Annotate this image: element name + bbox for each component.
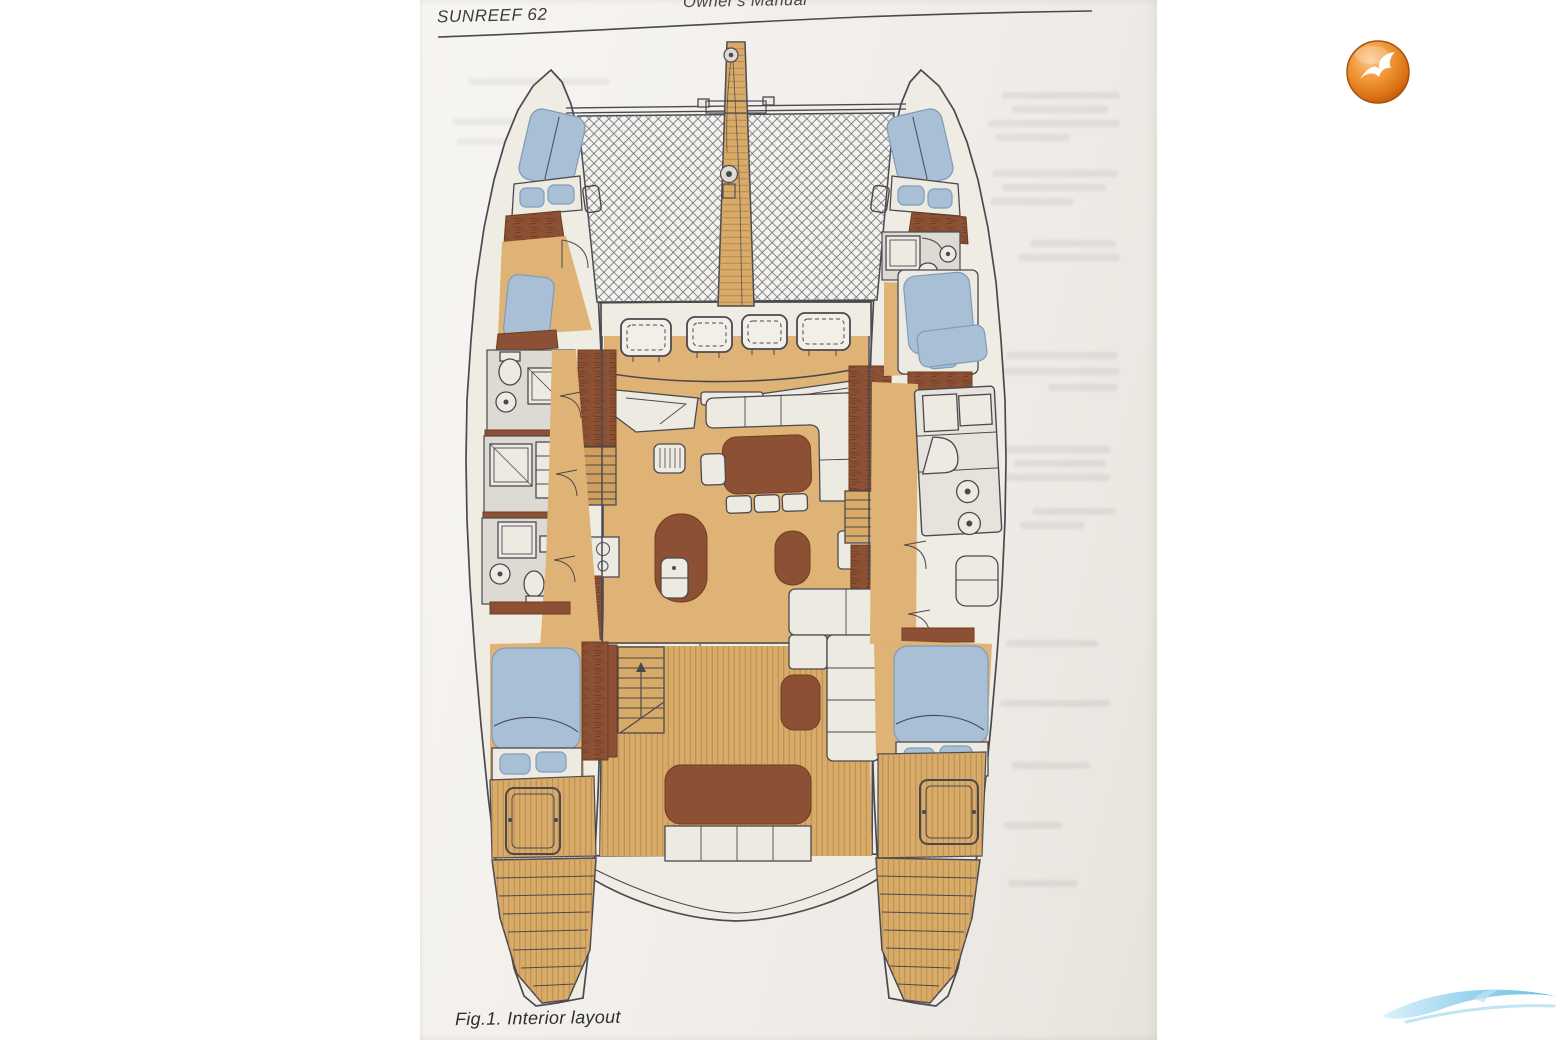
deck-hatch: [742, 315, 787, 355]
cockpit-bench: [789, 635, 827, 669]
deck-hatch: [687, 317, 732, 358]
hull-corridor: [870, 382, 918, 644]
broker-logo: [1344, 38, 1412, 106]
settee: [956, 556, 998, 606]
hull-window: [916, 324, 988, 368]
starboard-galley-counter: [914, 386, 1002, 537]
toilet-icon: [499, 359, 521, 385]
cockpit-table: [665, 765, 811, 824]
cockpit-seat-cushions: [665, 826, 811, 861]
cockpit-bench: [789, 589, 875, 635]
dining-stool: [726, 496, 752, 514]
pillow: [898, 186, 924, 205]
aft-platform: [560, 854, 912, 921]
deck-hatch: [621, 319, 671, 362]
port-side-deck: [490, 776, 596, 858]
watermark: [1376, 974, 1560, 1034]
deck-hatch: [797, 313, 850, 356]
counter-module: [959, 394, 993, 426]
pillow: [548, 185, 574, 204]
dining-stool: [754, 495, 780, 513]
manual-model-title: SUNREEF 62: [437, 5, 548, 28]
cockpit-side-table: [781, 675, 820, 730]
appliance: [923, 394, 959, 432]
companionway-steps: [618, 647, 664, 733]
scanned-manual-photo: SUNREEF 62 Owner's Manual Fig.1. Interio…: [0, 0, 1560, 1040]
ottoman: [775, 531, 810, 585]
pillow: [520, 188, 544, 207]
pillow: [500, 754, 530, 774]
floor-plan: [0, 0, 1560, 1040]
starboard-side-deck: [878, 752, 986, 858]
dining-stool: [782, 494, 808, 512]
divider: [902, 628, 974, 642]
shower-icon: [886, 236, 920, 270]
cockpit-bench: [827, 635, 879, 761]
orange-seagull-badge-icon: [1347, 41, 1409, 103]
divider: [490, 602, 570, 614]
saloon-dining-table: [722, 434, 812, 494]
double-berth: [492, 648, 580, 750]
shower-icon: [498, 522, 536, 558]
toilet-icon: [524, 571, 544, 597]
divider: [496, 330, 558, 352]
pillow: [928, 189, 952, 208]
pillow: [536, 752, 566, 772]
dining-chair: [701, 453, 726, 485]
double-berth: [894, 646, 988, 744]
figure-caption: Fig.1. Interior layout: [455, 1007, 621, 1030]
blue-wave-swoosh-icon: [1382, 990, 1556, 1022]
